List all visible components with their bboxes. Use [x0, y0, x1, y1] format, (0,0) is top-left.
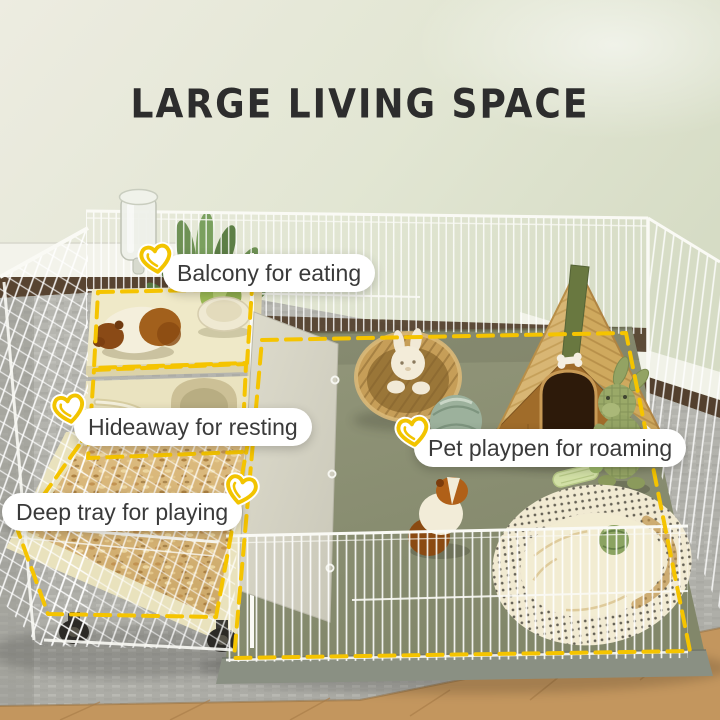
annotation-text: Balcony for eating: [163, 254, 375, 292]
heart-doodle-icon: [135, 238, 178, 281]
page-title: LARGE LIVING SPACE: [0, 82, 720, 128]
annotation-tray: Deep tray for playing: [2, 493, 242, 531]
front-wire-fence: [226, 526, 688, 662]
heart-doodle-icon: [392, 411, 435, 454]
annotation-hideaway: Hideaway for resting: [74, 408, 312, 446]
annotation-text: Pet playpen for roaming: [414, 429, 686, 467]
annotation-balcony: Balcony for eating: [163, 254, 375, 292]
product-marketing-image: LARGE LIVING SPACE Balcony for eating Hi…: [0, 0, 720, 720]
annotation-playpen: Pet playpen for roaming: [414, 429, 686, 467]
annotation-text: Deep tray for playing: [2, 493, 242, 531]
heart-doodle-icon: [219, 467, 264, 512]
heart-doodle-icon: [47, 387, 91, 431]
annotation-text: Hideaway for resting: [74, 408, 312, 446]
